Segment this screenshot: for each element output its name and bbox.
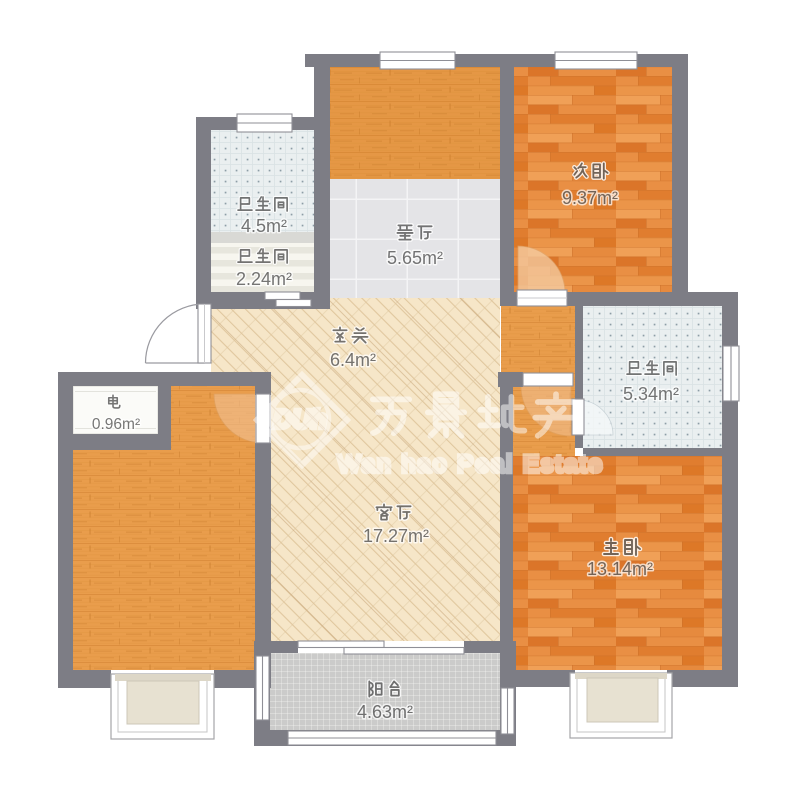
svg-text:6.4m²: 6.4m²	[330, 350, 376, 370]
svg-text:0.96m²: 0.96m²	[92, 416, 140, 433]
svg-text:Wan hao Peal Estate: Wan hao Peal Estate	[338, 451, 604, 478]
svg-text:2.24m²: 2.24m²	[236, 269, 292, 289]
svg-text:5.34m²: 5.34m²	[623, 384, 679, 404]
svg-text:4.63m²: 4.63m²	[357, 702, 413, 722]
svg-text:17.27m²: 17.27m²	[363, 526, 429, 546]
svg-text:4.5m²: 4.5m²	[241, 216, 287, 236]
svg-text:9.37m²: 9.37m²	[562, 188, 618, 208]
svg-text:5.65m²: 5.65m²	[387, 248, 443, 268]
svg-text:13.14m²: 13.14m²	[587, 559, 653, 579]
svg-text:DUh: DUh	[273, 404, 326, 434]
